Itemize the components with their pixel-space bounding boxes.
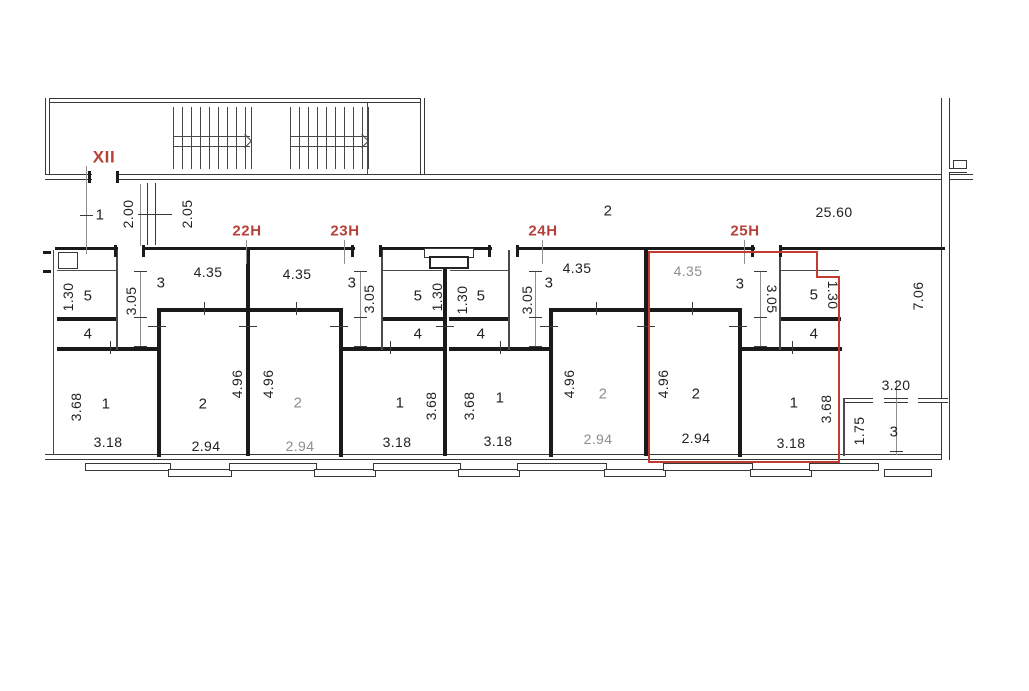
- window: [604, 469, 666, 477]
- room-number: 4: [477, 327, 486, 342]
- thin-wall: [173, 146, 250, 147]
- dimension-line: [760, 272, 761, 347]
- window: [517, 463, 607, 471]
- floor-plan: XII 1 2.00 2.05 2 25.60 7.06 22Н 23Н 24Н…: [0, 0, 1029, 691]
- dimension-label: 3.05: [765, 285, 779, 314]
- double-wall: [45, 454, 950, 460]
- dimension-label: 1.30: [61, 283, 75, 312]
- dimension-tick: [354, 346, 367, 347]
- dimension-tick: [540, 326, 558, 327]
- dimension-label: 4.96: [230, 370, 244, 399]
- dimension-tick: [500, 341, 501, 354]
- wall: [738, 347, 842, 351]
- dimension-tick: [529, 346, 542, 347]
- double-wall: [45, 98, 425, 103]
- dimension-label: 3.18: [484, 434, 513, 448]
- dimension-line: [535, 272, 536, 347]
- window: [168, 469, 232, 477]
- dimension-tick: [637, 326, 655, 327]
- room-number: 1: [790, 396, 799, 411]
- unit-label-23n: 23Н: [330, 224, 359, 239]
- dimension-tick: [729, 326, 747, 327]
- dimension-tick: [110, 341, 111, 354]
- dimension-tick: [204, 302, 205, 315]
- room-number: 2: [294, 396, 303, 411]
- dimension-tick: [596, 302, 597, 315]
- dimension-label: 4.96: [261, 370, 275, 399]
- wall: [549, 308, 553, 351]
- window: [229, 463, 317, 471]
- door-jamb: [114, 245, 117, 257]
- selected-unit-outline: [816, 276, 840, 278]
- wall: [57, 317, 118, 321]
- room-number: 5: [477, 289, 486, 304]
- double-wall: [45, 98, 50, 180]
- wall: [650, 308, 742, 312]
- thin-wall: [843, 398, 845, 456]
- thin-wall: [450, 270, 508, 271]
- dimension-label: 1.30: [455, 286, 469, 315]
- double-wall: [45, 174, 973, 180]
- thin-wall: [290, 146, 367, 147]
- wall: [738, 308, 742, 351]
- dimension-tick: [754, 317, 767, 318]
- corridor-dimension: 2.00: [121, 200, 135, 229]
- door-jamb: [88, 171, 91, 183]
- room-number: 4: [810, 327, 819, 342]
- selected-unit-outline: [648, 251, 818, 253]
- dimension-tick: [890, 451, 903, 452]
- corridor-dimension: 2.05: [180, 200, 194, 229]
- thin-wall: [173, 136, 250, 137]
- dimension-label: 2.94: [192, 439, 221, 453]
- dimension-label: 3.05: [362, 285, 376, 314]
- dimension-tick: [354, 271, 367, 272]
- door-jamb: [488, 245, 491, 257]
- detail-box: [953, 160, 967, 169]
- dimension-label: 3.68: [462, 392, 476, 421]
- dimension-tick: [754, 346, 767, 347]
- dimension-label: 2.94: [682, 431, 711, 445]
- dimension-tick: [354, 317, 367, 318]
- door-opening: [92, 172, 116, 181]
- dimension-tick: [529, 271, 542, 272]
- window: [373, 463, 461, 471]
- corridor-room-number: 2: [604, 204, 613, 219]
- door-jamb: [116, 171, 119, 183]
- room-number: 5: [84, 289, 93, 304]
- wall: [57, 347, 161, 351]
- door-jamb: [379, 245, 382, 257]
- dimension-label: 4.35: [283, 267, 312, 281]
- selected-unit-outline: [816, 251, 818, 278]
- corridor-room-number: 1: [96, 208, 105, 223]
- wall: [157, 308, 161, 351]
- dimension-line: [86, 166, 87, 254]
- door-jamb: [142, 245, 145, 257]
- wall: [449, 347, 553, 351]
- room-number: 5: [414, 289, 423, 304]
- window: [458, 469, 520, 477]
- wall: [549, 347, 553, 457]
- window: [809, 463, 879, 471]
- stair-section-label: XII: [93, 149, 116, 166]
- thin-wall: [53, 250, 54, 455]
- dimension-tick: [529, 317, 542, 318]
- window: [85, 463, 171, 471]
- double-wall: [941, 98, 950, 460]
- dimension-label: 2.94: [286, 439, 315, 453]
- dimension-label: 4.35: [674, 264, 703, 278]
- dimension-label: 3.18: [94, 435, 123, 449]
- dimension-tick: [390, 341, 391, 354]
- dimension-line: [542, 240, 543, 264]
- window: [663, 463, 753, 471]
- shaft-box: [429, 256, 469, 269]
- unit-label-22n: 22Н: [232, 224, 261, 239]
- door-opening: [44, 254, 51, 270]
- selected-unit-outline: [648, 251, 650, 463]
- thin-wall: [57, 270, 116, 271]
- double-wall: [420, 98, 425, 180]
- side-dimension: 7.06: [911, 282, 925, 311]
- room-number: 2: [199, 397, 208, 412]
- room-number: 1: [396, 396, 405, 411]
- dimension-label: 4.35: [194, 265, 223, 279]
- room-number: 3: [348, 276, 357, 291]
- dimension-tick: [692, 302, 693, 315]
- room-number: 4: [414, 327, 423, 342]
- dimension-label: 3.68: [69, 393, 83, 422]
- dimension-tick: [792, 341, 793, 354]
- thin-wall: [508, 250, 510, 350]
- dimension-line: [344, 240, 345, 264]
- wall: [443, 250, 447, 456]
- thin-wall: [290, 136, 367, 137]
- wall: [157, 347, 161, 457]
- wall: [382, 317, 443, 321]
- wall: [339, 308, 343, 351]
- dimension-tick: [138, 214, 172, 215]
- room-number: 2: [599, 387, 608, 402]
- room-number: 5: [810, 288, 819, 303]
- dimension-tick: [330, 326, 348, 327]
- dimension-tick: [436, 326, 454, 327]
- dimension-label: 3.05: [520, 286, 534, 315]
- dimension-label: 3.68: [424, 392, 438, 421]
- room-number: 4: [84, 327, 93, 342]
- dimension-line: [140, 184, 141, 246]
- double-wall: [845, 398, 873, 403]
- room-number: 3: [545, 276, 554, 291]
- dimension-tick: [134, 271, 147, 272]
- dimension-label: 4.96: [562, 370, 576, 399]
- dimension-label: 3.05: [124, 287, 138, 316]
- dimension-tick: [890, 398, 903, 399]
- window: [750, 469, 812, 477]
- dimension-tick: [148, 326, 166, 327]
- dimension-tick: [754, 271, 767, 272]
- dimension-label: 1.75: [852, 417, 866, 446]
- dimension-label: 4.96: [656, 370, 670, 399]
- dimension-tick: [80, 215, 93, 216]
- dimension-label: 1.30: [430, 283, 444, 312]
- dimension-label: 3.68: [819, 395, 833, 424]
- dimension-label: 3.18: [777, 436, 806, 450]
- room-number: 3: [736, 277, 745, 292]
- double-wall: [918, 398, 948, 403]
- dimension-label: 4.35: [563, 261, 592, 275]
- door-jamb: [516, 245, 519, 257]
- door-jamb: [43, 270, 51, 273]
- room-number: 1: [102, 397, 111, 412]
- dimension-tick: [296, 302, 297, 315]
- wall: [339, 347, 343, 457]
- room-number: 2: [692, 387, 701, 402]
- thin-wall: [781, 270, 839, 271]
- thin-wall: [116, 250, 118, 350]
- thin-wall: [383, 270, 442, 271]
- corridor-length-dimension: 25.60: [815, 205, 852, 219]
- window: [314, 469, 376, 477]
- wall: [779, 247, 945, 250]
- dimension-line: [246, 240, 247, 264]
- selected-unit-outline: [648, 461, 840, 463]
- unit-label-25n: 25Н: [730, 224, 759, 239]
- door-jamb: [351, 245, 354, 257]
- window: [884, 469, 932, 477]
- wall: [780, 317, 841, 321]
- door-jamb: [43, 251, 51, 254]
- dimension-label: 2.94: [584, 432, 613, 446]
- room-number: 1: [496, 391, 505, 406]
- thin-wall: [381, 250, 383, 350]
- wall: [516, 247, 755, 250]
- dimension-tick: [134, 317, 147, 318]
- wall: [339, 347, 443, 351]
- dimension-tick: [239, 326, 257, 327]
- dimension-line: [140, 272, 141, 347]
- dimension-label: 3.20: [882, 378, 911, 392]
- wall: [449, 317, 510, 321]
- dimension-tick: [134, 346, 147, 347]
- dimension-label: 3.18: [383, 435, 412, 449]
- room-number: 3: [157, 276, 166, 291]
- room-number: 3: [890, 425, 899, 440]
- wall: [738, 347, 742, 457]
- unit-label-24n: 24Н: [528, 224, 557, 239]
- dimension-label: 1.30: [826, 281, 840, 310]
- detail-box: [58, 252, 78, 269]
- wall: [246, 250, 250, 456]
